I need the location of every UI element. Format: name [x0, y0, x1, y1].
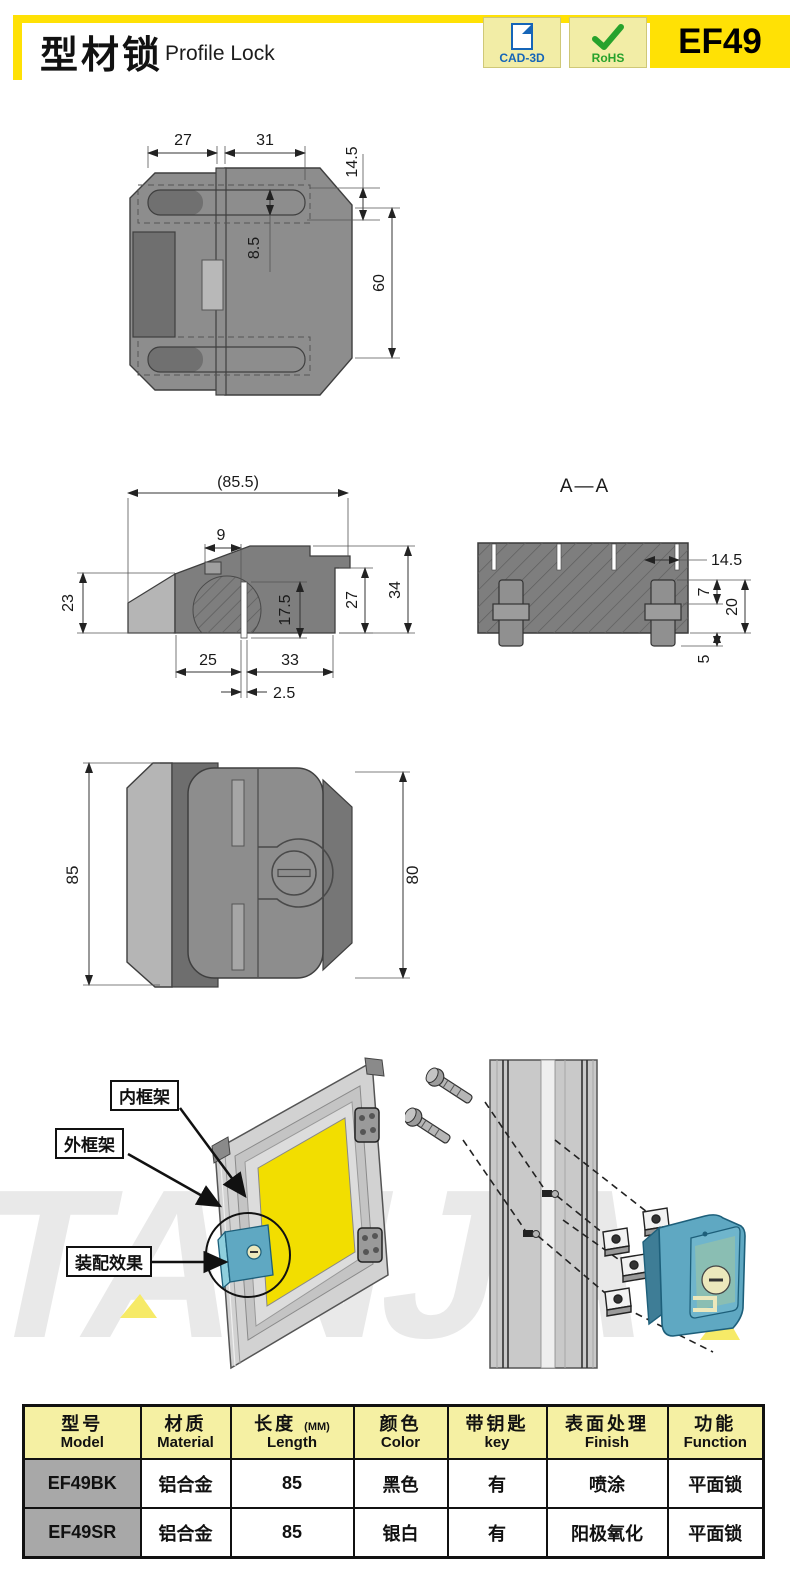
header-accent-bar — [13, 15, 22, 80]
dim-7: 7 — [696, 587, 713, 596]
screw-2 — [405, 1105, 454, 1148]
cell-color: 黑色 — [354, 1459, 448, 1508]
cell-function: 平面锁 — [668, 1508, 764, 1558]
latch-plate — [202, 260, 223, 310]
drawing-front-view: 85 80 — [65, 735, 455, 1020]
section-pin-right — [645, 580, 681, 646]
col-key: 带钥匙key — [448, 1406, 547, 1460]
check-icon — [591, 24, 625, 50]
dim-85: 85 — [65, 866, 82, 885]
cell-material: 铝合金 — [141, 1508, 231, 1558]
page-title-en: Profile Lock — [165, 42, 275, 66]
body-recess — [133, 232, 175, 337]
screw-1 — [423, 1065, 476, 1108]
dim-14-5: 14.5 — [344, 146, 361, 177]
cad-3d-badge[interactable]: CAD-3D — [483, 17, 561, 68]
hinge-bottom — [358, 1228, 382, 1262]
lock-body-right — [225, 168, 352, 395]
watermark-accent — [120, 1294, 157, 1318]
dim-27: 27 — [174, 132, 192, 149]
dim-9: 9 — [217, 527, 226, 544]
col-function: 功能Function — [668, 1406, 764, 1460]
cam-circle — [193, 576, 261, 644]
aluminium-profile — [490, 1060, 597, 1368]
dim-85-5: (85.5) — [217, 474, 259, 491]
rohs-label: RoHS — [592, 52, 625, 64]
callout-assembly-effect: 装配效果 — [66, 1246, 152, 1277]
front-right-plate — [323, 780, 352, 970]
dim-2-5: 2.5 — [273, 685, 295, 702]
cell-color: 银白 — [354, 1508, 448, 1558]
mount-slot-bottom — [148, 347, 203, 372]
dim-27b: 27 — [344, 591, 361, 609]
cell-key: 有 — [448, 1459, 547, 1508]
cell-length: 85 — [231, 1508, 354, 1558]
cell-finish: 阳极氧化 — [547, 1508, 668, 1558]
table-row: EF49BK 铝合金 85 黑色 有 喷涂 平面锁 — [24, 1459, 764, 1508]
drawing-side-view: (85.5) 9 23 17.5 27 34 25 33 2.5 — [55, 460, 445, 705]
dim-17-5: 17.5 — [277, 594, 294, 625]
col-model: 型号Model — [24, 1406, 141, 1460]
front-wedge — [127, 763, 172, 987]
dim-25: 25 — [199, 652, 217, 669]
drawing-section-aa: A—A 14.5 7 20 5 — [455, 460, 790, 675]
assembly-door-illustration — [40, 1050, 425, 1395]
cell-model: EF49SR — [24, 1508, 141, 1558]
col-material: 材质Material — [141, 1406, 231, 1460]
cell-key: 有 — [448, 1508, 547, 1558]
dim-23: 23 — [60, 594, 77, 612]
spec-header-row: 型号Model 材质Material 长度 (MM)Length 颜色Color… — [24, 1406, 764, 1460]
mount-slot-top — [148, 190, 203, 215]
drawing-top-view: 27 31 14.5 8.5 60 — [95, 120, 425, 415]
dim-5: 5 — [696, 654, 713, 663]
section-label: A—A — [560, 476, 610, 497]
callout-outer-frame: 外框架 — [55, 1128, 124, 1159]
cell-length: 85 — [231, 1459, 354, 1508]
cell-material: 铝合金 — [141, 1459, 231, 1508]
hinge-top — [355, 1108, 379, 1142]
corner-cap-right — [365, 1058, 384, 1076]
dim-34: 34 — [387, 581, 404, 599]
dim-8-5: 8.5 — [246, 237, 263, 259]
side-tab — [205, 562, 221, 574]
dim-31: 31 — [256, 132, 274, 149]
dim-60: 60 — [371, 274, 388, 292]
spec-table: 型号Model 材质Material 长度 (MM)Length 颜色Color… — [22, 1404, 765, 1559]
cell-function: 平面锁 — [668, 1459, 764, 1508]
product-code: EF49 — [650, 15, 790, 68]
assembly-exploded-illustration — [405, 1040, 790, 1395]
rohs-badge: RoHS — [569, 17, 647, 68]
col-length: 长度 (MM)Length — [231, 1406, 354, 1460]
catalog-page: 型材锁 Profile Lock CAD-3D RoHS EF49 — [0, 0, 790, 1574]
exploded-lock — [643, 1215, 745, 1336]
col-finish: 表面处理Finish — [547, 1406, 668, 1460]
cam-gap — [241, 582, 247, 638]
cell-model: EF49BK — [24, 1459, 141, 1508]
cad-document-icon — [511, 23, 533, 50]
side-wedge — [128, 574, 175, 633]
dim-33: 33 — [281, 652, 299, 669]
col-color: 颜色Color — [354, 1406, 448, 1460]
dim-20: 20 — [724, 598, 741, 616]
dim-14-5b: 14.5 — [711, 552, 742, 569]
dim-80: 80 — [403, 866, 422, 885]
cad-3d-label: CAD-3D — [499, 52, 544, 64]
table-row: EF49SR 铝合金 85 银白 有 阳极氧化 平面锁 — [24, 1508, 764, 1558]
cell-finish: 喷涂 — [547, 1459, 668, 1508]
page-title-cn: 型材锁 — [40, 24, 163, 79]
callout-inner-frame: 内框架 — [110, 1080, 179, 1111]
